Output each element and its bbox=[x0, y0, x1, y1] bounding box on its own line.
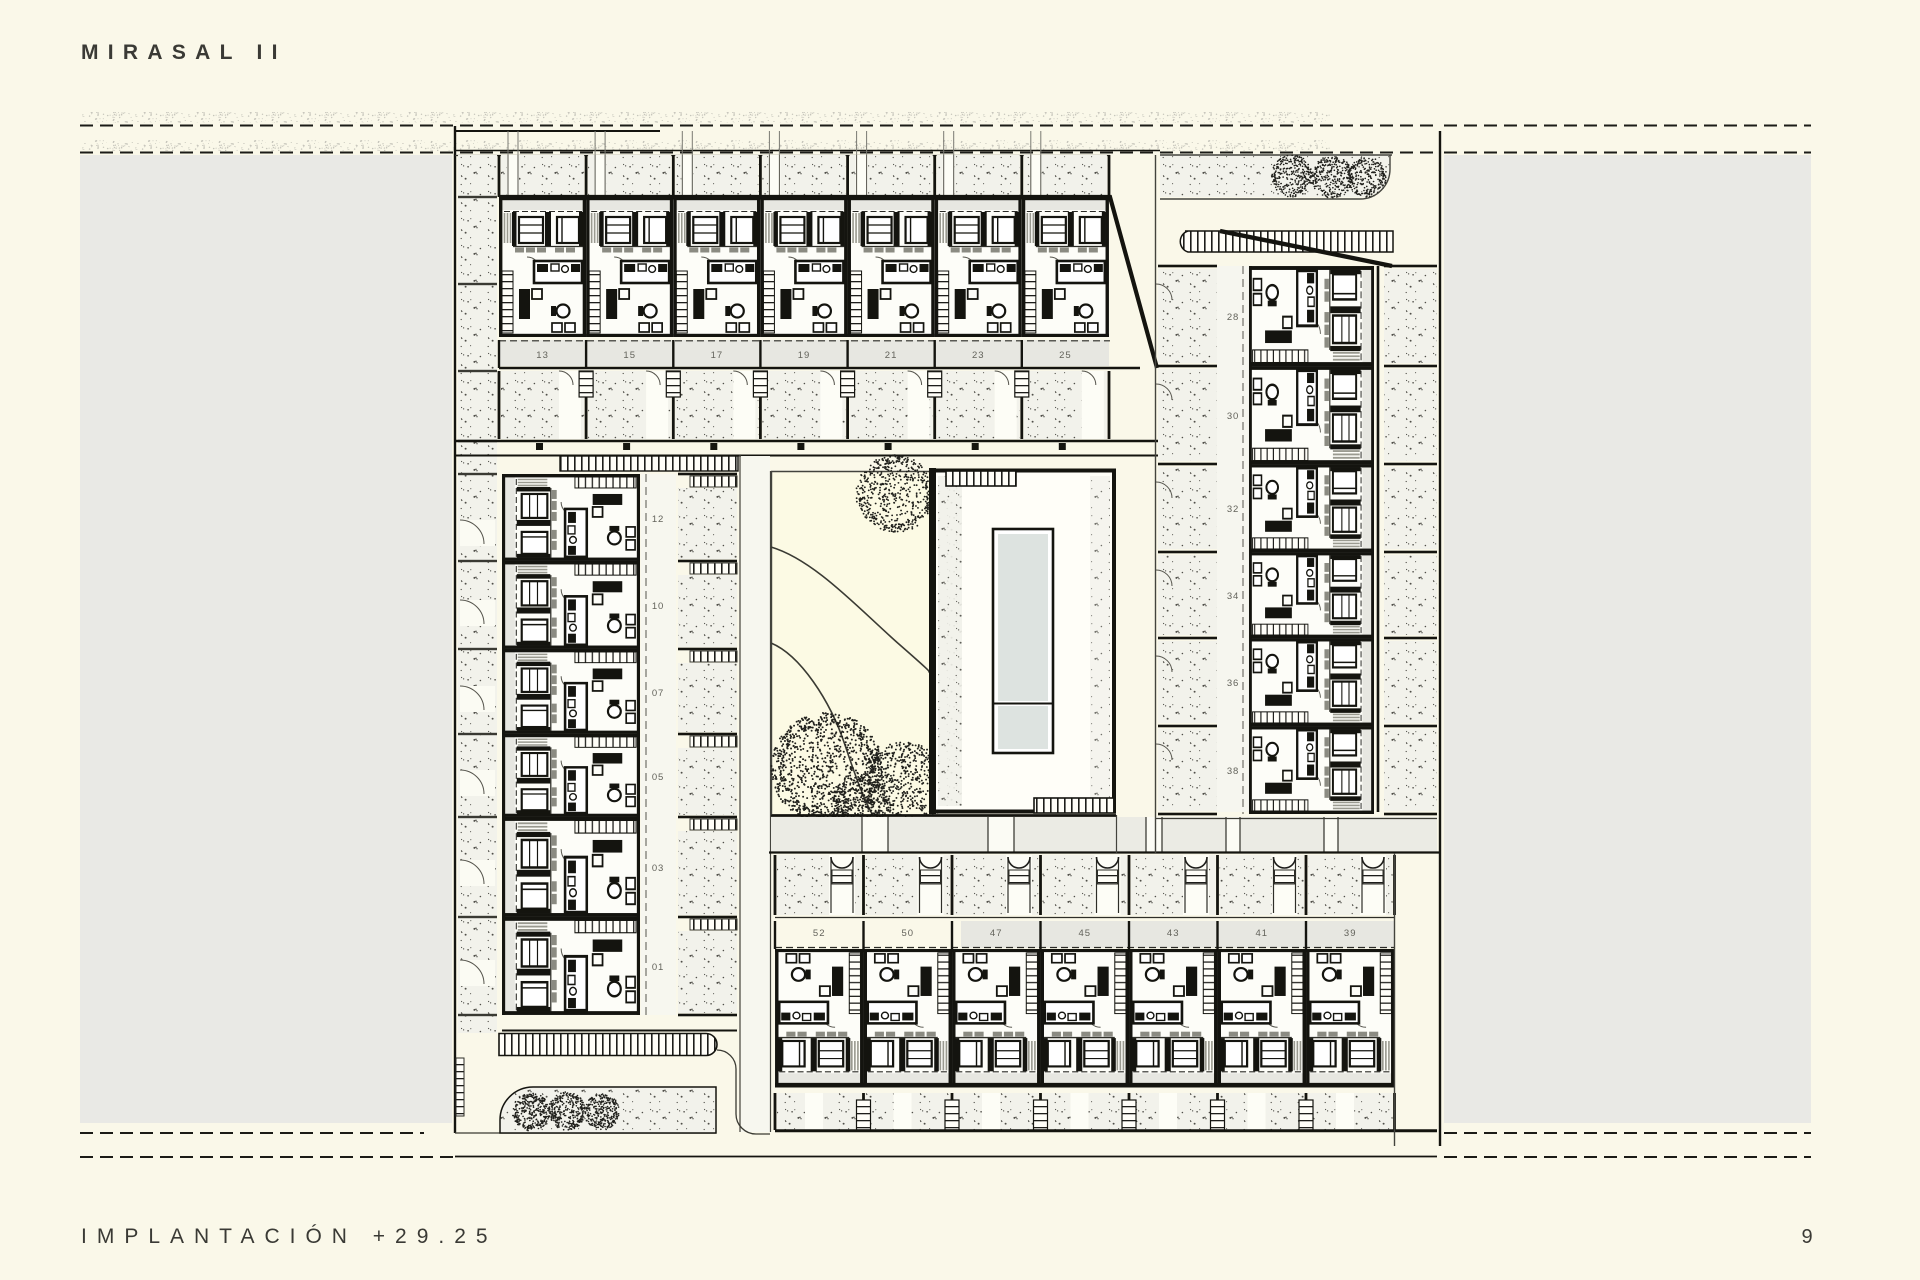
svg-text:45: 45 bbox=[1079, 928, 1092, 939]
svg-text:25: 25 bbox=[1059, 350, 1072, 361]
svg-text:39: 39 bbox=[1344, 928, 1357, 939]
svg-text:03: 03 bbox=[652, 863, 664, 874]
svg-text:19: 19 bbox=[798, 350, 811, 361]
svg-text:9: 9 bbox=[1801, 1226, 1812, 1248]
svg-text:21: 21 bbox=[885, 350, 898, 361]
svg-text:10: 10 bbox=[652, 601, 664, 612]
svg-text:15: 15 bbox=[623, 350, 636, 361]
svg-text:17: 17 bbox=[711, 350, 724, 361]
svg-text:23: 23 bbox=[972, 350, 985, 361]
svg-text:07: 07 bbox=[652, 688, 664, 699]
svg-text:MIRASAL II: MIRASAL II bbox=[81, 41, 287, 64]
svg-text:38: 38 bbox=[1227, 766, 1239, 777]
svg-text:43: 43 bbox=[1167, 928, 1180, 939]
svg-text:52: 52 bbox=[813, 928, 826, 939]
svg-text:50: 50 bbox=[902, 928, 915, 939]
svg-text:36: 36 bbox=[1227, 678, 1239, 689]
svg-text:13: 13 bbox=[536, 350, 549, 361]
svg-text:12: 12 bbox=[652, 514, 664, 525]
svg-text:IMPLANTACIÓN +29.25: IMPLANTACIÓN +29.25 bbox=[81, 1225, 498, 1248]
svg-text:01: 01 bbox=[652, 962, 664, 973]
svg-text:05: 05 bbox=[652, 772, 664, 783]
svg-text:47: 47 bbox=[990, 928, 1003, 939]
svg-text:30: 30 bbox=[1227, 411, 1239, 422]
svg-text:41: 41 bbox=[1256, 928, 1269, 939]
svg-text:34: 34 bbox=[1227, 591, 1239, 602]
svg-text:32: 32 bbox=[1227, 504, 1239, 515]
svg-text:28: 28 bbox=[1227, 312, 1239, 323]
